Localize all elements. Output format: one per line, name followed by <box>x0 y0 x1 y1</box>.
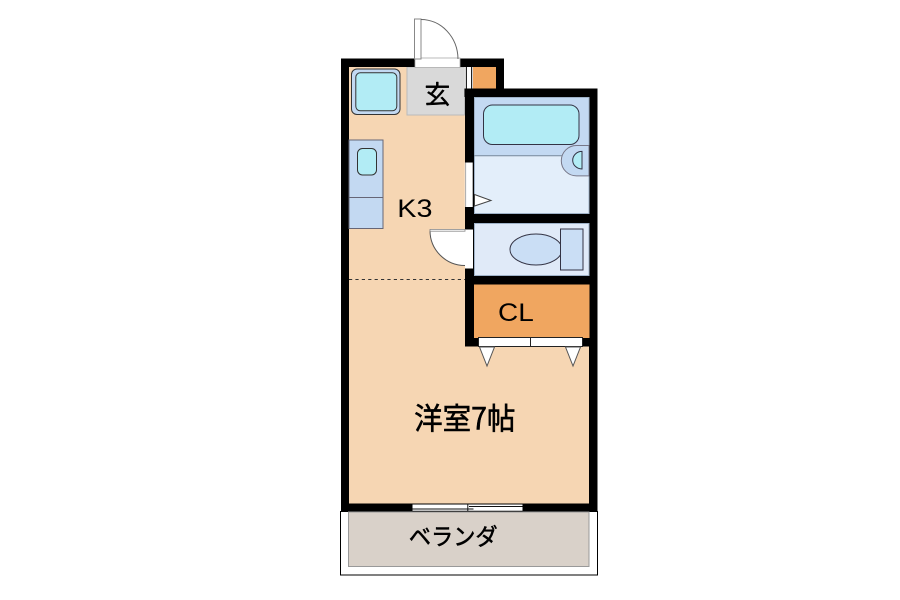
svg-text:CL: CL <box>498 298 534 326</box>
svg-text:K3: K3 <box>397 195 432 223</box>
